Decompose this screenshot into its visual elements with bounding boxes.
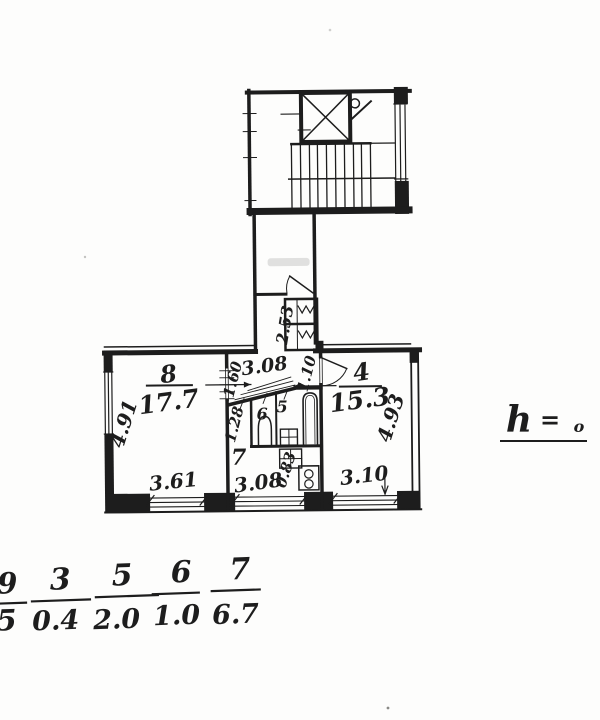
fraction-numerator: 3 <box>49 562 71 598</box>
fraction-bar <box>212 589 260 591</box>
right-wall <box>411 350 420 508</box>
dim-left-side: 4.91 <box>105 397 142 451</box>
left-pier-top <box>104 351 113 372</box>
scan-speck <box>84 256 86 258</box>
room4-door-leaf <box>322 358 347 369</box>
top-wall-right <box>316 350 420 351</box>
dim-stove-width: 0.83 <box>272 450 300 490</box>
bottom-pier-3 <box>304 492 333 511</box>
chute-wall <box>350 101 371 120</box>
washbasin-cross <box>280 429 297 445</box>
fraction-numerator: 6 <box>170 555 192 591</box>
bottom-windows <box>114 495 419 507</box>
shelf-zigzag-icon <box>298 331 314 338</box>
top-wall-inner-line <box>104 344 410 347</box>
stair-treads <box>291 143 371 209</box>
dim-hall-width: 3.08 <box>240 352 289 380</box>
fraction-denominator: 1.0 <box>153 600 201 633</box>
dim-closet-depth: 2.53 <box>272 304 297 347</box>
top-wall-left <box>105 351 256 353</box>
fraction-5: 7 6.7 <box>210 551 261 631</box>
stove-burner-icon <box>305 480 313 488</box>
shelf-zigzag-icon <box>298 306 314 313</box>
window-junction-ticks <box>146 493 402 506</box>
height-note: h = o <box>501 399 586 441</box>
elevator-x-icon <box>303 94 348 139</box>
legend-fractions: 9 5 3 0.4 5 2.0 6 1.0 7 6.7 <box>0 551 261 639</box>
fraction-denominator: 5 <box>0 603 17 638</box>
leader-arrowhead <box>244 382 251 388</box>
fraction-bar <box>96 595 158 597</box>
corridor-door-leaf <box>290 276 313 293</box>
scan-speck <box>387 707 390 710</box>
room7-number: 7 <box>231 445 247 471</box>
height-note-symbol: h <box>506 399 532 441</box>
fraction-2: 3 0.4 <box>30 561 91 637</box>
bottom-pier-4 <box>397 491 420 510</box>
room4-door-swing <box>322 369 347 386</box>
fraction-numerator: 9 <box>0 566 18 601</box>
elevator-shaft <box>281 92 351 142</box>
fraction-3: 5 2.0 <box>90 557 159 636</box>
right-pier-top <box>410 350 419 363</box>
floor-plan-scan: 8 17.7 4 15.3 7 5 6 4.91 4.93 3.61 3.08 … <box>0 0 600 720</box>
fraction-denominator: 2.0 <box>92 604 141 637</box>
corridor-left-wall <box>254 214 255 351</box>
fraction-denominator: 0.4 <box>32 605 80 638</box>
stairwell-block <box>243 87 411 216</box>
dim-wc-width: 1.28 <box>221 404 248 444</box>
fraction-denominator: 6.7 <box>212 599 260 632</box>
room8-area: 17.7 <box>137 383 202 420</box>
height-note-value: o <box>574 417 585 436</box>
garbage-chute <box>350 99 371 121</box>
bottom-pier-2 <box>204 493 235 512</box>
bottom-outer-line <box>105 509 421 512</box>
corridor-door-swing <box>286 276 290 293</box>
bathtub-inner-line <box>305 395 315 444</box>
bath-bottom-wall <box>252 446 322 447</box>
fraction-bar <box>32 599 90 601</box>
stairwell-left-wall <box>249 91 250 215</box>
bottom-pier-1 <box>106 494 150 513</box>
room6-number: 6 <box>257 404 268 423</box>
stair-window <box>394 104 408 181</box>
fraction-bar <box>153 593 199 595</box>
stair-top-edge <box>291 143 370 144</box>
room4-number: 4 <box>351 356 372 387</box>
room5-number: 5 <box>276 397 287 416</box>
room4-door-jambs <box>320 357 323 385</box>
dim-room8-bottom: 3.61 <box>148 467 199 496</box>
fraction-numerator: 5 <box>111 558 133 594</box>
scan-smudge <box>268 258 310 266</box>
stairwell-bottom-wall <box>250 210 409 212</box>
stair-right-pier-top <box>394 87 408 104</box>
stairs <box>288 143 395 209</box>
fraction-4: 6 1.0 <box>151 555 201 633</box>
scan-speck <box>329 29 332 32</box>
height-note-equals: = <box>540 405 560 434</box>
fraction-numerator: 7 <box>229 552 251 588</box>
fraction-1: 9 5 <box>0 566 27 638</box>
stove-burner-icon <box>305 470 313 478</box>
elevator-door-marks <box>281 114 310 130</box>
stair-landing-line <box>289 178 395 179</box>
room8-number: 8 <box>158 358 179 389</box>
